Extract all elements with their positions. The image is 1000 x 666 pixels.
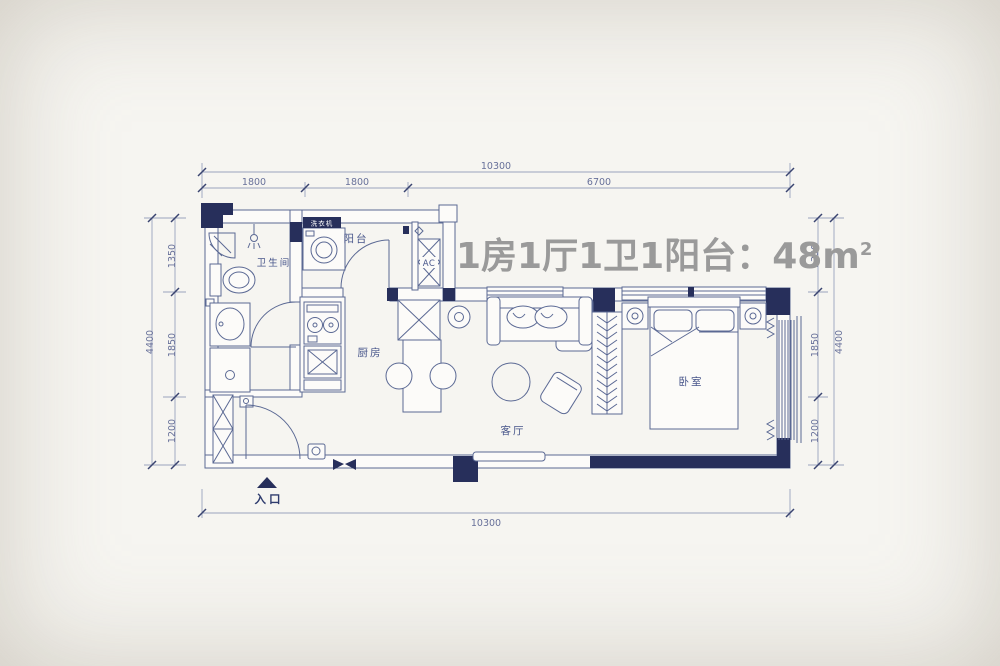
wall-fill-living-stub xyxy=(443,288,455,301)
wall-fill-balcony-post xyxy=(403,226,409,234)
shower-head-icon xyxy=(248,224,260,249)
dim-top-seg2: 1800 xyxy=(345,177,369,188)
kitchen: 厨房 xyxy=(300,297,456,412)
dim-bottom-total: 10300 xyxy=(471,518,501,529)
fridge-icon xyxy=(398,300,440,340)
ac-unit-icon: AC xyxy=(418,239,440,286)
sofa-icon xyxy=(487,297,593,351)
tv-console-icon xyxy=(473,452,545,461)
sink-vanity-icon xyxy=(210,303,250,346)
balcony-door xyxy=(341,240,389,288)
bathroom-label: 卫生间 xyxy=(257,257,292,269)
shoe-cabinet-icon xyxy=(213,395,233,463)
nightstand-left-icon xyxy=(622,303,648,329)
floorplan-image: 10300 1800 1800 6700 10300 1350 1850 120… xyxy=(0,0,1000,666)
wall-fill-top-right-corner xyxy=(766,288,790,315)
plan-title-unit: m xyxy=(822,236,860,277)
dim-left-seg2: 1850 xyxy=(167,333,178,357)
dim-right-seg3: 1200 xyxy=(810,419,821,443)
living-room: 客厅 xyxy=(448,297,593,461)
living-room-label: 客厅 xyxy=(501,424,526,437)
balcony-label: 阳台 xyxy=(344,232,369,245)
dim-top-seg1: 1800 xyxy=(242,177,266,188)
washer-label: 洗衣机 xyxy=(311,219,334,228)
hall-stool-icon xyxy=(308,444,325,459)
accent-chair-icon xyxy=(538,370,583,416)
dim-right-seg2: 1850 xyxy=(810,333,821,357)
plan-title-unit-sup: 2 xyxy=(860,239,873,260)
wardrobe-icon xyxy=(592,312,622,414)
dim-top-total: 10300 xyxy=(481,161,511,172)
kitchen-label: 厨房 xyxy=(358,346,383,359)
dining-table-icon xyxy=(386,340,456,412)
entrance-arrow-icon xyxy=(257,477,277,488)
dim-left-seg3: 1200 xyxy=(167,419,178,443)
wall-fill-top-left-step xyxy=(223,203,233,215)
bathroom: 卫生间 xyxy=(206,224,296,392)
plan-title-main: 1房1厅1卫1阳台：48 xyxy=(456,236,822,277)
wall-fill-balcony-door-stub xyxy=(387,288,398,301)
ac-label: AC xyxy=(423,259,436,269)
shower-tray xyxy=(210,348,250,392)
entry-area: 入口 xyxy=(213,395,325,506)
wall-fill-bedroom-bottom xyxy=(590,456,790,468)
plan-title: 1房1厅1卫1阳台：48m2 xyxy=(456,229,856,278)
dim-top-seg3: 6700 xyxy=(587,177,611,188)
dim-left-seg1: 1350 xyxy=(167,244,178,268)
wall-fill-bedroom-divider xyxy=(593,288,615,312)
bathroom-door xyxy=(251,302,296,347)
stool-icon xyxy=(448,306,470,328)
bed-icon xyxy=(648,297,740,429)
wall-mid-vertical xyxy=(443,210,455,301)
floorplan-svg: 10300 1800 1800 6700 10300 1350 1850 120… xyxy=(0,0,1000,666)
dim-right-total: 4400 xyxy=(834,330,845,354)
column-top xyxy=(439,205,457,222)
round-rug-icon xyxy=(492,363,530,401)
balcony: 洗衣机 阳台 AC xyxy=(303,217,440,288)
wall-fill-bathroom xyxy=(290,222,302,242)
nightstand-right-icon xyxy=(740,303,766,329)
wall-ac-closet-left xyxy=(412,222,418,290)
toilet-icon xyxy=(210,264,255,296)
wall-fill-top-left-corner xyxy=(201,203,223,228)
entrance-label: 入口 xyxy=(255,492,284,506)
bedroom: 卧室 xyxy=(592,297,801,443)
entry-door xyxy=(240,396,300,459)
washing-machine-icon xyxy=(303,228,345,270)
dim-left-total: 4400 xyxy=(145,330,156,354)
bedroom-label: 卧室 xyxy=(679,375,704,388)
